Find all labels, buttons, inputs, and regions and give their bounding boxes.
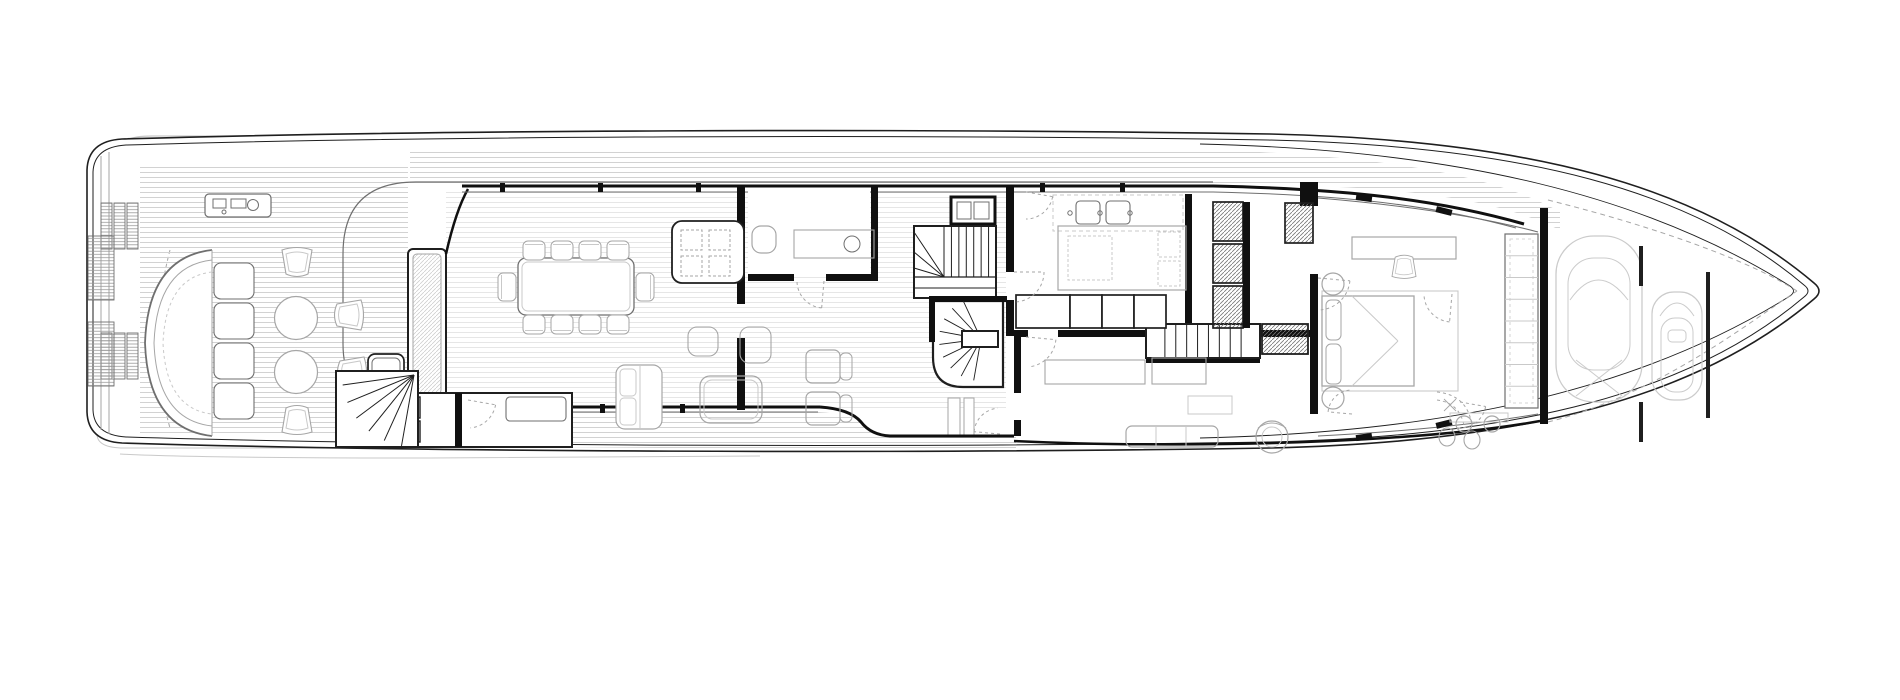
office-wall [1014,337,1021,393]
aft-deck-stair [336,371,418,447]
window-sill [680,404,685,413]
spiral-stair-hub [962,331,998,347]
dining-chair [498,273,516,301]
master-bulkhead [1310,274,1318,414]
dining-table [518,258,634,315]
day-head-wall [748,274,794,281]
bulkhead-salon-fwd [737,338,745,410]
window-sill [1040,183,1045,192]
deck-chair [335,300,364,330]
pantry-unit [1285,203,1313,243]
dining-chair [579,241,601,260]
deck-chair [282,406,312,435]
deck-chair [282,248,312,277]
galley-appliance [1134,295,1166,328]
window-sill [598,183,603,192]
aft-deck-round-table [275,297,318,340]
boarding-gate-strip [948,398,960,436]
stern-step-pad [88,236,114,300]
galley-hatch-cabinet [1262,324,1308,354]
windlass-console [205,194,271,217]
section-marker-bar [1706,272,1710,418]
bed-mattress [1322,296,1414,386]
galley-appliance [1070,295,1102,328]
vanity-chair [1392,255,1416,278]
aft-stair-room [396,393,572,447]
yacht-main-deck-plan [0,0,1900,700]
spiral-wall-top [929,296,1007,302]
dining-chair [607,315,629,334]
dining-chair [523,241,545,260]
bulkhead-mid [1006,186,1014,272]
dining-chair [523,315,545,334]
day-head-wall [826,274,878,281]
plan-canvas [0,0,1900,700]
section-marker-bar [1639,402,1643,442]
pantry-unit [1213,244,1243,283]
corridor-wall [1058,330,1148,337]
section-marker-bar [1639,246,1643,286]
window-sill [1120,183,1125,192]
window-sill [600,404,605,413]
dining-chair [579,315,601,334]
boarding-gate-strip [964,398,974,436]
bulkhead-mid [1006,300,1014,336]
window-sill [696,183,701,192]
dining-chair [607,241,629,260]
pantry-unit [1213,286,1243,328]
pantry-wall [1243,202,1250,328]
mooring-hatch [114,333,125,379]
bidet [1464,431,1480,449]
office-wall [1014,420,1021,436]
stern-step-pad [88,322,114,386]
mooring-hatch [114,203,125,249]
mooring-hatch [127,203,138,249]
dumbwaiter-shaft [951,197,995,224]
sofa-cushion [214,303,254,339]
aft-stair-room-divider [455,393,462,447]
galley-appliance [1102,295,1134,328]
fwd-bulkhead [1540,208,1548,424]
sofa-cushion [214,343,254,379]
dining-chair [551,241,573,260]
salon-sofa [616,365,662,429]
mooring-hatch [127,333,138,379]
sofa-cushion [214,263,254,299]
boatdeck-overhang-line-4 [120,454,760,458]
corridor-wall [1014,330,1028,337]
spiral-wall-left [929,296,935,342]
dining-chair [551,315,573,334]
crew-stair-enclosure [1146,324,1260,358]
window-sill [500,183,505,192]
room-fill-day-head [748,190,870,275]
sofa-cushion [214,383,254,419]
pantry-unit [1213,202,1243,241]
dining-chair [636,273,654,301]
aft-deck-round-table [275,351,318,394]
